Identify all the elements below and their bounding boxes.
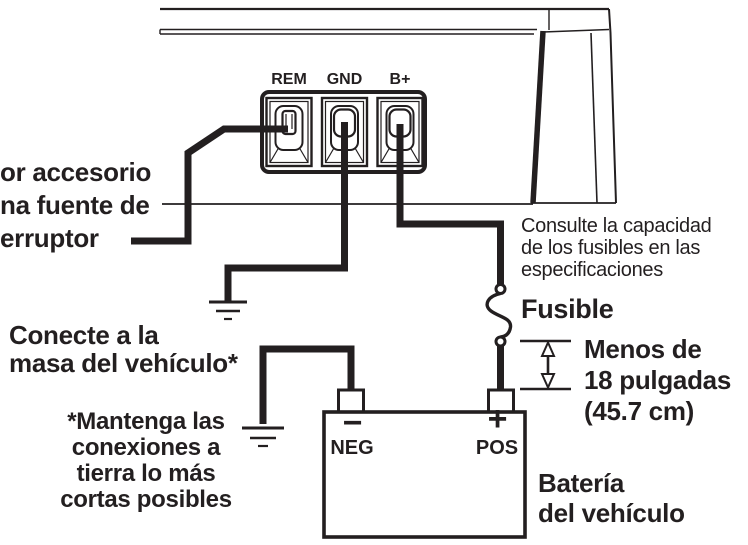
end-cap-edge	[533, 31, 543, 203]
chassis-ground-line: Conecte a la	[9, 321, 159, 349]
wiring-diagram: REM GND B+ or accesorio na fuente de err…	[0, 0, 748, 545]
ground-note-line: cortas posibles	[41, 487, 251, 513]
fuse-distance-line: Menos de	[584, 334, 702, 365]
fuse-symbol	[487, 285, 510, 347]
battery-label-line: Batería	[538, 468, 624, 498]
ground-note-line: tierra lo más	[41, 461, 251, 487]
bplus-terminal-label: B+	[390, 71, 411, 89]
battery-label-line: del vehículo	[538, 498, 685, 528]
fuse-spec-line: especificaciones	[521, 259, 663, 281]
battery-pos-label: POS	[476, 437, 518, 460]
chassis-ground-line: masa del vehículo*	[9, 349, 238, 377]
battery-minus-symbol: −	[343, 413, 363, 433]
battery-plus-symbol: +	[488, 409, 508, 429]
ground-note: *Mantenga las conexiones a tierra lo más…	[41, 409, 251, 513]
ground-note-line: conexiones a	[41, 435, 251, 461]
gnd-terminal-label: GND	[327, 71, 363, 89]
remote-source-line: or accesorio	[0, 159, 151, 185]
battery-neg-label: NEG	[330, 437, 373, 460]
ground-symbol-1	[209, 302, 247, 319]
remote-source-line: na fuente de	[0, 192, 150, 218]
fuse-spec-line: Consulte la capacidad	[521, 215, 712, 237]
fuse-distance-line: (45.7 cm)	[584, 396, 694, 427]
rem-terminal-label: REM	[271, 71, 307, 89]
fuse-label: Fusible	[521, 294, 613, 325]
fuse-distance-line: 18 pulgadas	[584, 365, 731, 396]
fuse-spec-line: de los fusibles en las	[521, 237, 700, 259]
dimension-indicator	[520, 341, 571, 389]
ground-note-line: *Mantenga las	[41, 409, 251, 435]
remote-source-line: erruptor	[0, 225, 99, 251]
